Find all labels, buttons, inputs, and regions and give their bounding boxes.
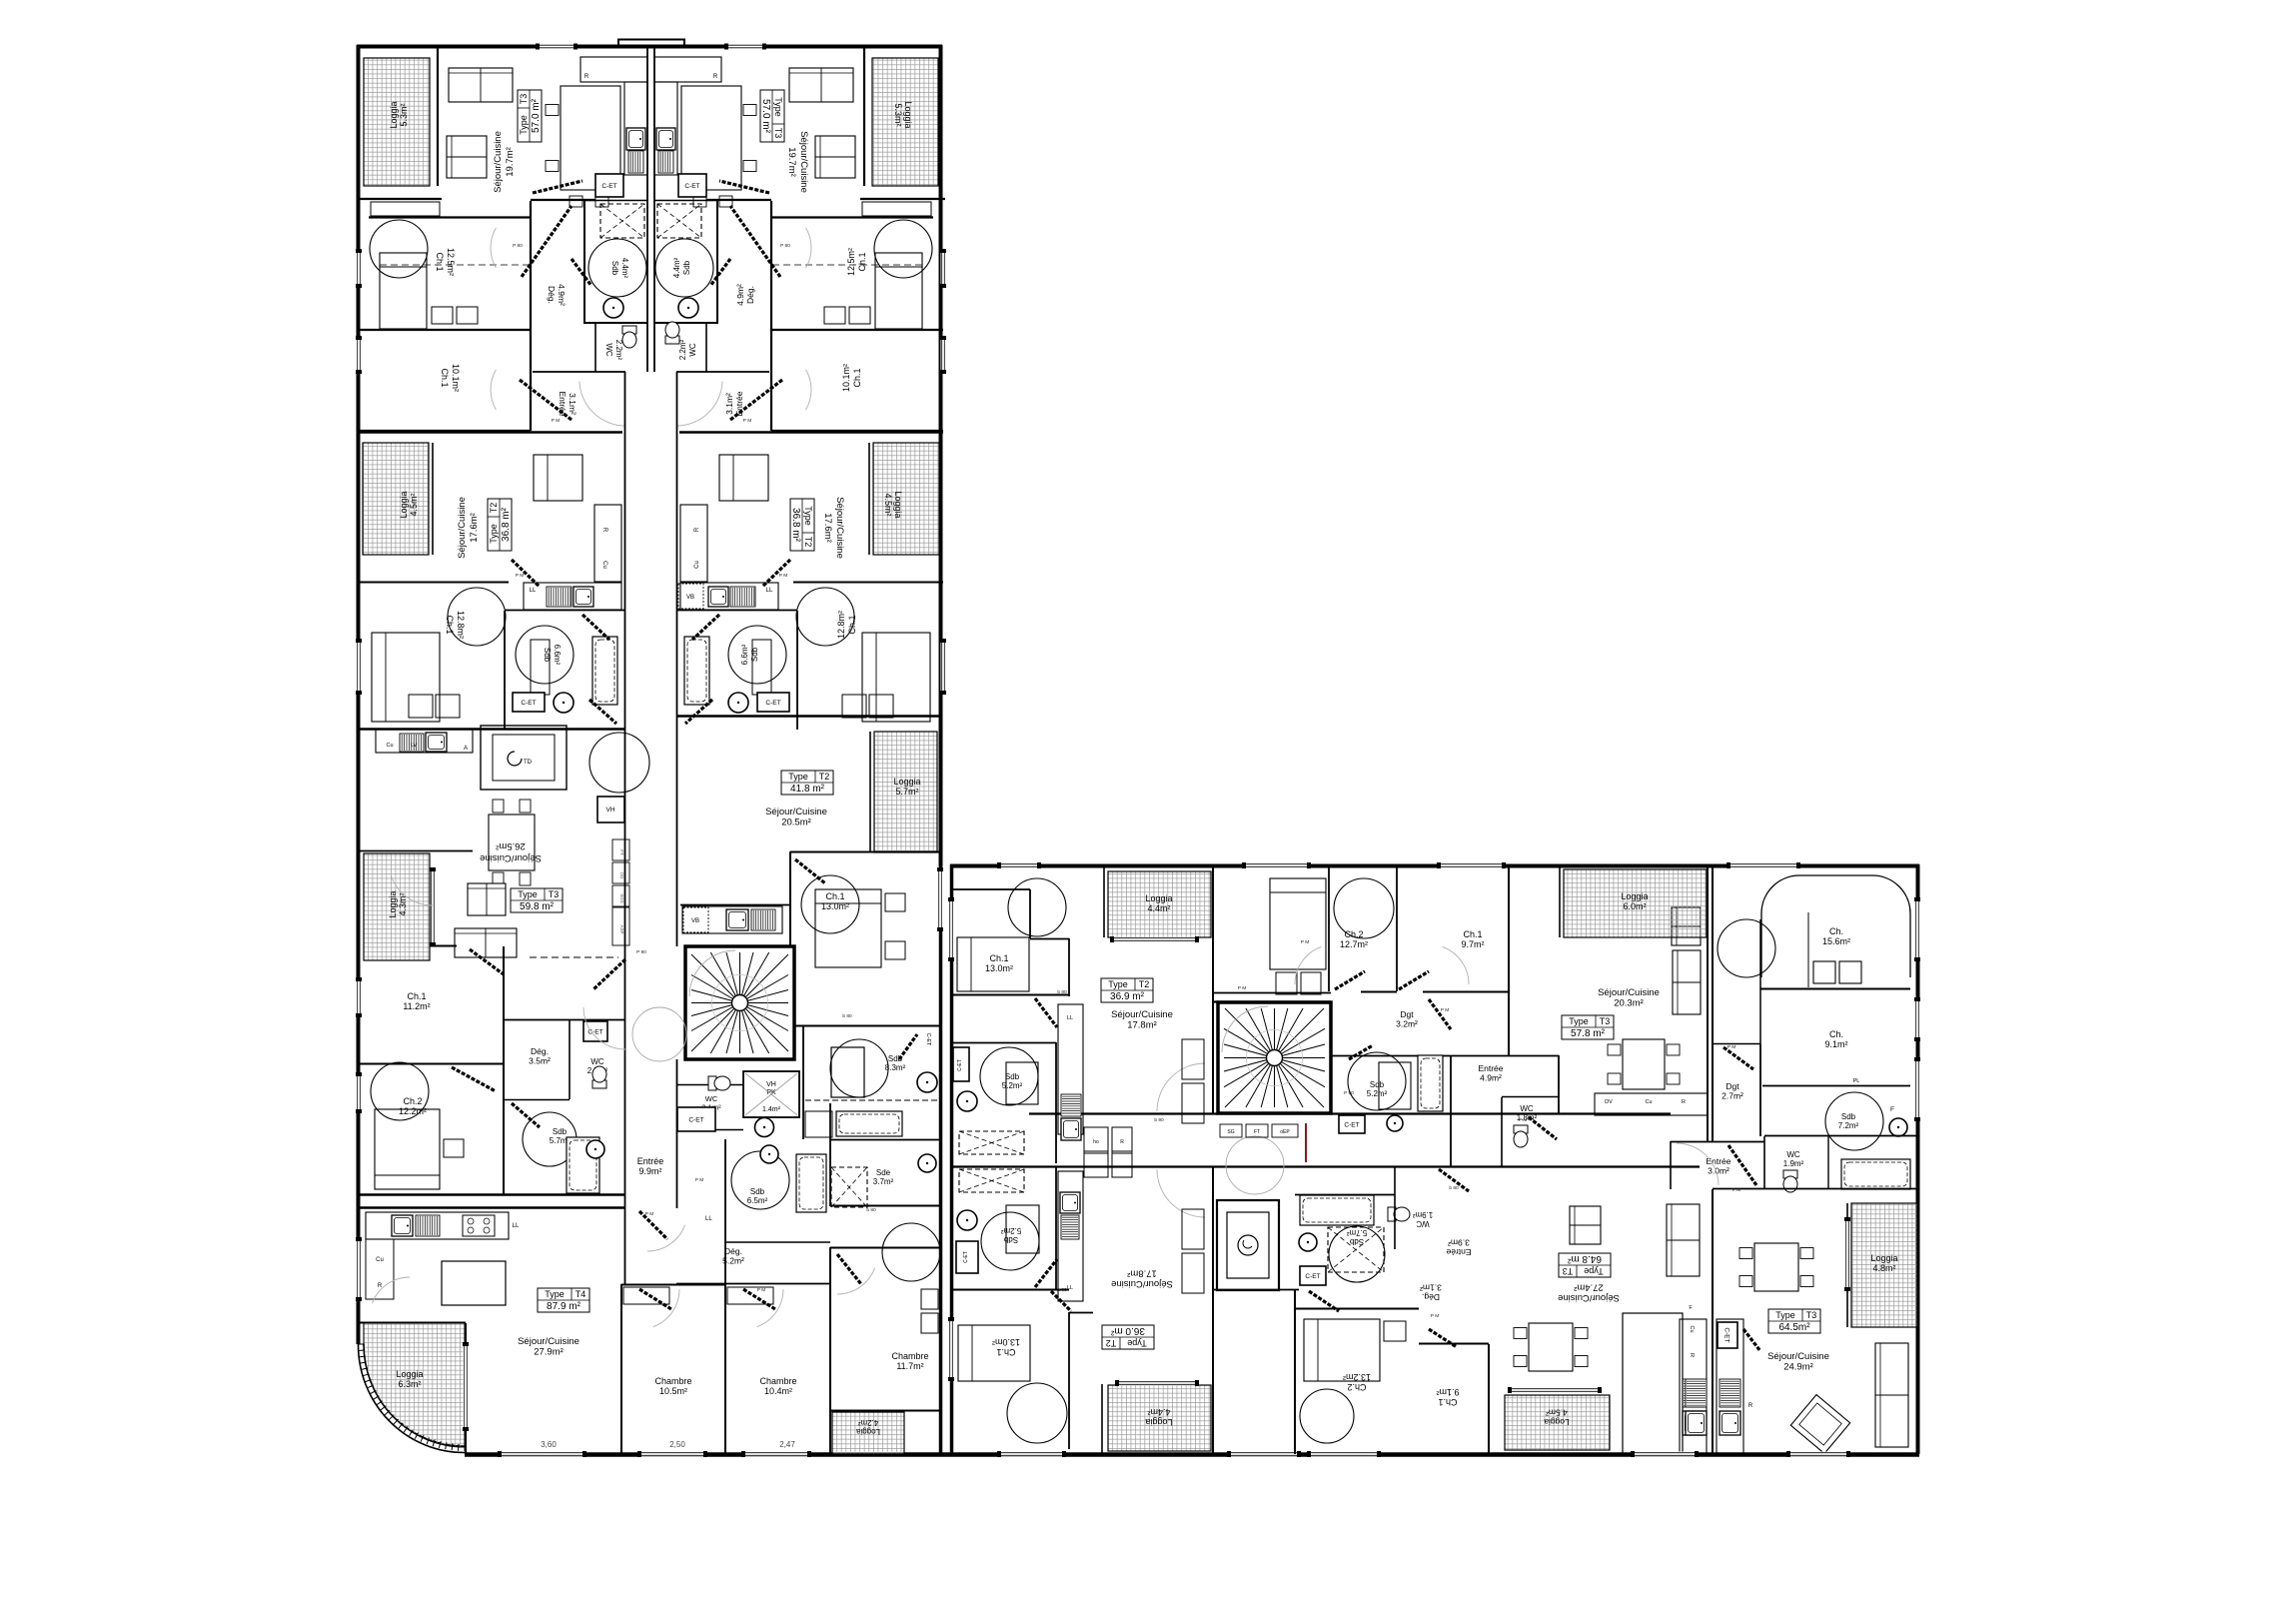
svg-text:Type: Type — [1108, 979, 1128, 989]
svg-text:C-ET: C-ET — [601, 183, 616, 190]
svg-text:P M: P M — [757, 1287, 765, 1293]
svg-text:Type: Type — [489, 524, 499, 544]
svg-text:LL: LL — [766, 588, 773, 594]
svg-text:12.5m²: 12.5m² — [446, 248, 456, 276]
svg-text:Entrée4.9m²: Entrée4.9m² — [1478, 1063, 1503, 1083]
svg-text:Ch.1: Ch.1 — [445, 615, 455, 634]
svg-text:b 80: b 80 — [866, 1207, 876, 1213]
svg-text:b 80: b 80 — [842, 1013, 852, 1019]
svg-text:36.0 m²: 36.0 m² — [1110, 1325, 1145, 1336]
svg-text:P 80: P 80 — [513, 243, 523, 249]
svg-text:Loggia4.2m²: Loggia4.2m² — [855, 1418, 880, 1436]
svg-text:Type: Type — [773, 97, 783, 117]
svg-text:P M: P M — [1727, 1044, 1735, 1050]
svg-text:26.5m²: 26.5m² — [496, 840, 526, 851]
svg-text:b 80: b 80 — [1449, 1185, 1459, 1191]
svg-text:F: F — [1890, 1106, 1894, 1113]
svg-text:Loggia5.3m²: Loggia5.3m² — [893, 101, 913, 128]
svg-text:Loggia5.7m²: Loggia5.7m² — [893, 777, 920, 797]
svg-text:ASP: ASP — [619, 924, 624, 933]
svg-text:Type: Type — [519, 115, 529, 135]
svg-text:Sdb: Sdb — [610, 261, 619, 276]
svg-text:Sdb: Sdb — [543, 648, 552, 663]
svg-text:FT: FT — [1254, 1129, 1260, 1135]
svg-text:Type: Type — [518, 889, 538, 899]
svg-text:36.8 m²: 36.8 m² — [790, 508, 801, 543]
svg-text:C-ET: C-ET — [1723, 1327, 1730, 1342]
svg-text:TD: TD — [524, 760, 533, 766]
svg-text:P M: P M — [779, 573, 787, 579]
svg-text:C-ET: C-ET — [521, 700, 536, 707]
svg-text:Sdb: Sdb — [750, 647, 759, 662]
svg-text:87.9 m²: 87.9 m² — [547, 1301, 581, 1312]
svg-text:DV: DV — [1605, 1099, 1613, 1105]
svg-text:41.8 m²: 41.8 m² — [790, 784, 825, 795]
svg-text:R: R — [601, 528, 607, 533]
svg-text:P M: P M — [1732, 1187, 1740, 1193]
svg-text:C-ET: C-ET — [1344, 1122, 1359, 1129]
svg-text:R: R — [1682, 1099, 1686, 1105]
svg-text:T3: T3 — [519, 94, 529, 105]
svg-text:2.2m²: 2.2m² — [678, 339, 687, 360]
svg-text:Type: Type — [803, 506, 813, 526]
svg-text:2,47: 2,47 — [779, 1440, 795, 1449]
svg-text:4.9m²: 4.9m² — [735, 284, 745, 306]
svg-text:R: R — [584, 74, 589, 80]
svg-text:64.8 m²: 64.8 m² — [1567, 1253, 1602, 1264]
svg-text:T3: T3 — [1806, 1310, 1817, 1320]
svg-text:R: R — [1120, 1139, 1124, 1145]
svg-text:Loggia4.4m²: Loggia4.4m² — [1145, 1407, 1172, 1427]
svg-text:T4: T4 — [575, 1289, 586, 1299]
svg-text:P M: P M — [516, 573, 524, 579]
svg-text:Type: Type — [1569, 1016, 1589, 1026]
svg-text:R: R — [1748, 1403, 1753, 1409]
svg-text:12.5m²: 12.5m² — [846, 248, 856, 276]
svg-text:T3: T3 — [549, 889, 560, 899]
svg-text:P M: P M — [645, 1211, 653, 1217]
svg-text:LL: LL — [530, 588, 537, 594]
svg-text:Ch.19.1m²: Ch.19.1m² — [1436, 1387, 1459, 1407]
svg-text:Loggia6.3m²: Loggia6.3m² — [396, 1369, 423, 1389]
svg-text:R: R — [694, 527, 700, 532]
svg-text:LL: LL — [1067, 1015, 1073, 1021]
svg-text:b 90: b 90 — [1154, 1117, 1164, 1123]
svg-text:T2: T2 — [819, 772, 830, 782]
svg-text:2,50: 2,50 — [669, 1440, 685, 1449]
svg-text:C-ET: C-ET — [688, 1117, 703, 1124]
svg-text:Cu: Cu — [386, 743, 393, 749]
svg-text:T2: T2 — [1106, 1338, 1117, 1348]
svg-text:Loggia4.4m²: Loggia4.4m² — [1145, 893, 1172, 913]
svg-text:Loggia5.3m²: Loggia5.3m² — [389, 101, 409, 128]
svg-text:Séjour/Cuisine: Séjour/Cuisine — [834, 497, 845, 559]
svg-text:VB: VB — [686, 595, 694, 601]
svg-text:WC: WC — [604, 343, 613, 357]
svg-text:C-ET: C-ET — [957, 1059, 963, 1071]
svg-text:Séjour/Cuisine: Séjour/Cuisine — [493, 131, 504, 193]
svg-text:Ch.1: Ch.1 — [852, 368, 862, 387]
svg-text:Loggia4.8m²: Loggia4.8m² — [1870, 1253, 1897, 1273]
svg-text:17.6m²: 17.6m² — [469, 513, 480, 543]
svg-text:6.6m²: 6.6m² — [740, 644, 749, 665]
svg-text:Type: Type — [545, 1289, 565, 1299]
svg-text:T3: T3 — [1563, 1266, 1574, 1276]
svg-text:Entrée3.9m²: Entrée3.9m² — [1446, 1238, 1471, 1258]
svg-text:R: R — [1689, 1353, 1695, 1357]
svg-text:59.8 m²: 59.8 m² — [520, 901, 555, 912]
svg-text:P M: P M — [552, 418, 560, 424]
svg-text:SGS: SGS — [619, 893, 624, 903]
svg-text:Dég.: Dég. — [745, 286, 755, 304]
svg-text:LV: LV — [411, 743, 418, 749]
svg-text:4.9m²: 4.9m² — [557, 284, 567, 306]
svg-text:10.1m²: 10.1m² — [451, 364, 461, 392]
svg-text:Type: Type — [788, 772, 808, 782]
svg-text:C-ET: C-ET — [765, 700, 780, 707]
svg-text:36.9 m²: 36.9 m² — [1110, 991, 1145, 1002]
svg-text:Cu: Cu — [601, 561, 607, 569]
svg-text:P M: P M — [1431, 1313, 1439, 1319]
svg-text:Type: Type — [1584, 1266, 1604, 1276]
svg-text:P M: P M — [695, 1177, 703, 1183]
svg-text:A: A — [464, 746, 468, 752]
svg-text:VH: VH — [605, 807, 614, 813]
svg-text:3.1m²: 3.1m² — [724, 393, 734, 415]
svg-text:b 80: b 80 — [1057, 1287, 1067, 1293]
svg-text:10.1m²: 10.1m² — [841, 364, 851, 392]
svg-text:12.8m²: 12.8m² — [456, 611, 466, 639]
svg-text:Loggia4.5m²: Loggia4.5m² — [883, 491, 903, 518]
svg-text:Séjour/Cuisine: Séjour/Cuisine — [457, 497, 468, 559]
svg-text:Séjour/Cuisine: Séjour/Cuisine — [798, 131, 809, 193]
svg-text:P 90: P 90 — [1344, 1090, 1354, 1096]
svg-text:C-ET: C-ET — [1305, 1273, 1320, 1280]
svg-text:Chambre11.7m²: Chambre11.7m² — [891, 1351, 928, 1371]
svg-text:P M: P M — [743, 418, 751, 424]
svg-text:Ch.1: Ch.1 — [857, 252, 867, 271]
svg-text:3,60: 3,60 — [541, 1440, 557, 1449]
svg-text:C-ET: C-ET — [925, 1033, 931, 1046]
svg-text:P 80: P 80 — [780, 243, 790, 249]
svg-text:19.7m²: 19.7m² — [786, 147, 797, 177]
svg-text:b 80: b 80 — [1057, 989, 1067, 995]
svg-text:VB: VB — [691, 918, 699, 924]
svg-text:Dég.3.5m²: Dég.3.5m² — [529, 1046, 551, 1066]
svg-text:17.6m²: 17.6m² — [822, 513, 833, 543]
svg-text:T3: T3 — [1600, 1016, 1611, 1026]
svg-text:T2: T2 — [803, 537, 813, 548]
svg-text:Ch.1: Ch.1 — [847, 615, 857, 634]
svg-text:6.6m²: 6.6m² — [553, 645, 562, 666]
svg-text:Dég.3.1m²: Dég.3.1m² — [1420, 1283, 1442, 1303]
svg-text:P M: P M — [1238, 985, 1246, 991]
svg-text:4.4m²: 4.4m² — [672, 257, 681, 278]
svg-text:57.8 m²: 57.8 m² — [1571, 1028, 1606, 1039]
svg-text:T2: T2 — [489, 503, 499, 514]
svg-text:Ch.1: Ch.1 — [440, 368, 450, 387]
svg-text:SG: SG — [1227, 1129, 1234, 1135]
svg-text:36.8 m²: 36.8 m² — [501, 507, 512, 542]
svg-text:P M: P M — [1301, 939, 1309, 945]
svg-text:Chambre10.4m²: Chambre10.4m² — [759, 1376, 796, 1396]
svg-text:P M: P M — [1519, 1117, 1527, 1123]
svg-text:Loggia6.0m²: Loggia6.0m² — [1621, 891, 1648, 911]
svg-text:ho: ho — [1093, 1139, 1099, 1145]
svg-text:LL: LL — [1067, 1285, 1073, 1291]
svg-text:LL: LL — [513, 1223, 520, 1229]
svg-text:PL: PL — [1853, 1078, 1860, 1084]
svg-text:57.0 m²: 57.0 m² — [531, 98, 542, 133]
svg-text:FT: FT — [619, 849, 624, 855]
svg-text:Sdb: Sdb — [682, 260, 691, 275]
svg-text:C-ET: C-ET — [684, 183, 699, 190]
svg-text:P M: P M — [1441, 1007, 1449, 1013]
svg-text:Dég.: Dég. — [547, 286, 557, 304]
svg-text:3.1m²: 3.1m² — [568, 393, 577, 415]
svg-text:2.2m²: 2.2m² — [614, 340, 623, 361]
svg-text:C-ET: C-ET — [963, 1251, 969, 1263]
svg-text:Chambre10.5m²: Chambre10.5m² — [654, 1376, 691, 1396]
svg-text:OG: OG — [619, 871, 624, 879]
svg-text:T2: T2 — [1139, 979, 1150, 989]
svg-text:Entrée9.9m²: Entrée9.9m² — [637, 1156, 664, 1176]
svg-text:T3: T3 — [773, 128, 783, 139]
svg-text:R: R — [713, 74, 718, 80]
svg-text:64.5m²: 64.5m² — [1778, 1322, 1810, 1333]
svg-text:Cu: Cu — [1645, 1099, 1652, 1105]
svg-text:57.0 m²: 57.0 m² — [760, 99, 771, 134]
svg-text:Ch.1: Ch.1 — [435, 252, 445, 271]
svg-text:Type: Type — [1127, 1338, 1147, 1348]
svg-text:WC: WC — [688, 343, 697, 357]
svg-text:Cu: Cu — [376, 1257, 384, 1263]
svg-text:oEP: oEP — [1280, 1129, 1290, 1135]
svg-text:Cu: Cu — [694, 561, 700, 569]
svg-text:Loggia4.5m²: Loggia4.5m² — [1544, 1408, 1570, 1428]
svg-text:1.4m²: 1.4m² — [762, 1106, 781, 1113]
svg-text:12.8m²: 12.8m² — [836, 611, 846, 639]
svg-text:P 90: P 90 — [636, 949, 646, 955]
svg-text:Type: Type — [1775, 1310, 1795, 1320]
svg-text:Loggia4.5m²: Loggia4.5m² — [399, 491, 419, 518]
svg-text:19.7m²: 19.7m² — [505, 147, 516, 177]
svg-text:Cu: Cu — [1689, 1325, 1695, 1332]
svg-text:LL: LL — [705, 1216, 712, 1222]
svg-text:Ch.19.7m²: Ch.19.7m² — [1461, 929, 1484, 949]
svg-text:4.4m²: 4.4m² — [620, 258, 629, 279]
